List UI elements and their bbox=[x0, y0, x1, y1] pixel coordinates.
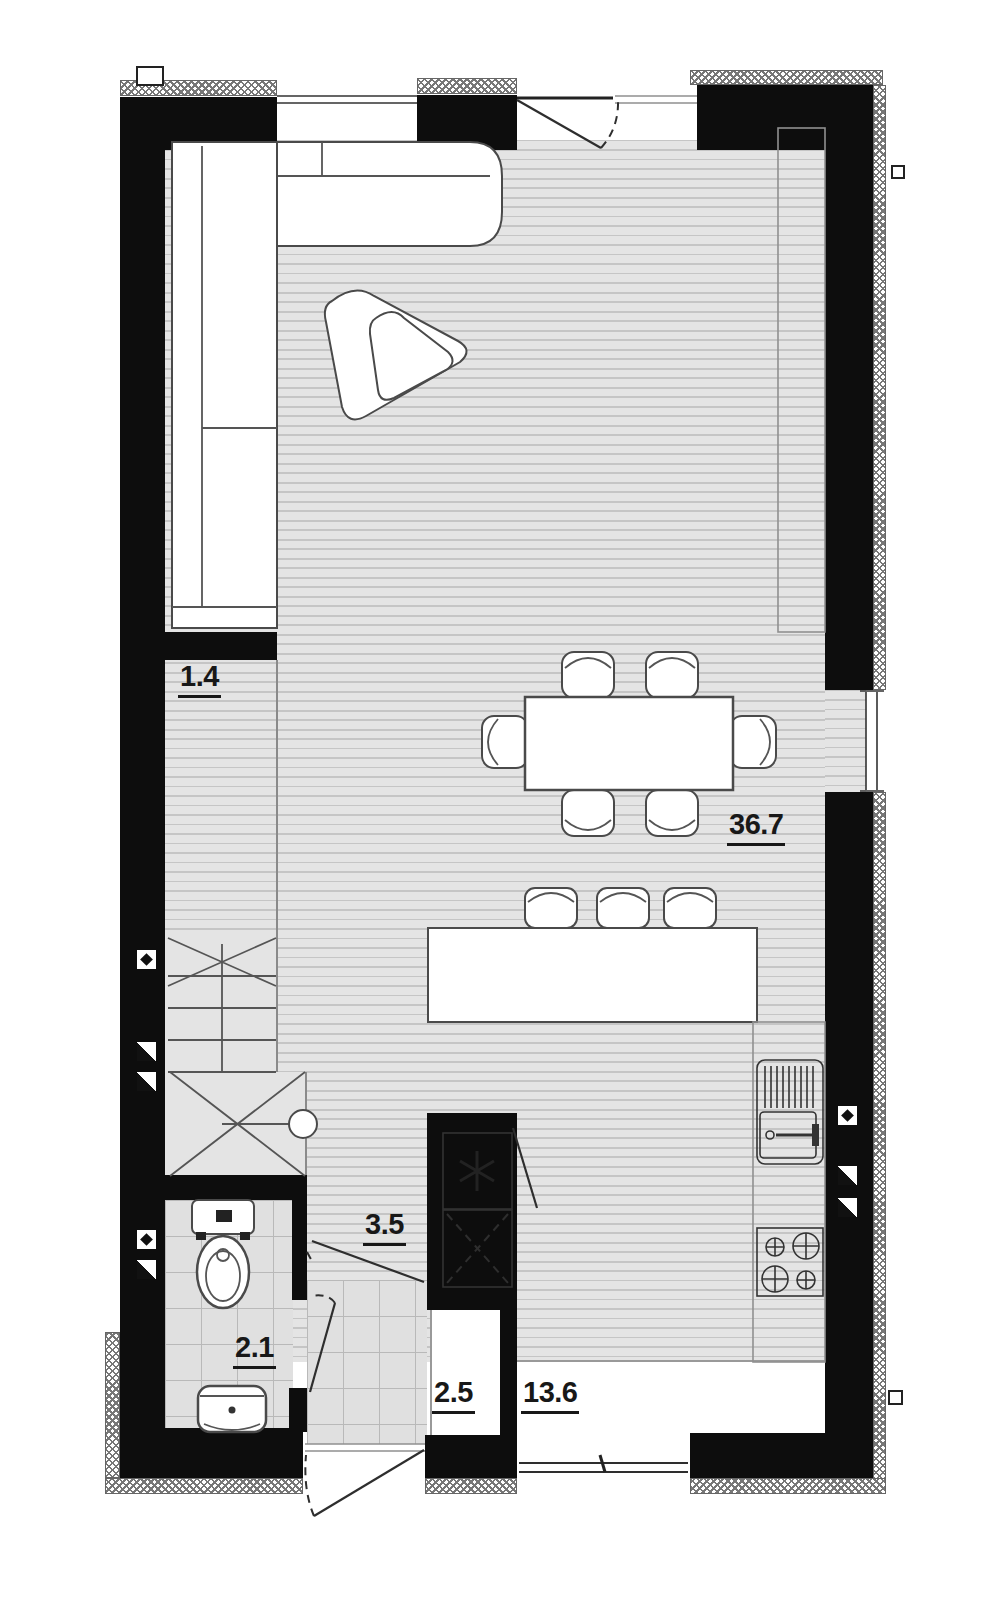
window-right bbox=[860, 691, 884, 791]
closet-door bbox=[513, 1128, 537, 1208]
washbasin bbox=[198, 1386, 266, 1432]
wall-socket-icon bbox=[838, 1106, 857, 1125]
bar-stool bbox=[525, 888, 716, 928]
appliance-unit bbox=[443, 1210, 512, 1287]
kitchen-sink bbox=[757, 1060, 823, 1164]
fixtures-layer bbox=[0, 0, 1000, 1619]
duct-icon bbox=[137, 1042, 156, 1061]
area-label-living: 36.7 bbox=[727, 810, 785, 846]
entry-door-bottom bbox=[305, 1444, 425, 1516]
area-label-corridor: 1.4 bbox=[178, 662, 221, 698]
bathroom-door bbox=[310, 1295, 335, 1392]
entry-door-top bbox=[517, 96, 697, 148]
hallway-door bbox=[307, 1241, 424, 1282]
duct-icon bbox=[838, 1166, 857, 1185]
stairs bbox=[168, 938, 317, 1176]
kitchen-island bbox=[428, 928, 757, 1022]
wardrobe bbox=[778, 128, 825, 632]
duct-icon bbox=[137, 1260, 156, 1279]
duct-icon bbox=[838, 1198, 857, 1217]
duct-icon bbox=[137, 1072, 156, 1091]
area-label-bathroom: 2.1 bbox=[233, 1333, 276, 1369]
area-label-vestibule: 2.5 bbox=[432, 1378, 475, 1414]
wall-socket-icon bbox=[137, 950, 156, 969]
window-top bbox=[277, 96, 417, 103]
boiler-unit bbox=[443, 1133, 512, 1209]
area-label-terrace: 13.6 bbox=[521, 1378, 579, 1414]
toilet bbox=[192, 1200, 254, 1308]
floor-plan: 1.4 36.7 3.5 2.1 2.5 13.6 bbox=[0, 0, 1000, 1619]
terrace-door bbox=[519, 1455, 688, 1472]
area-label-hallway: 3.5 bbox=[363, 1210, 406, 1246]
stove bbox=[757, 1228, 823, 1296]
pouf bbox=[325, 291, 467, 420]
wall-socket-icon bbox=[137, 1230, 156, 1249]
